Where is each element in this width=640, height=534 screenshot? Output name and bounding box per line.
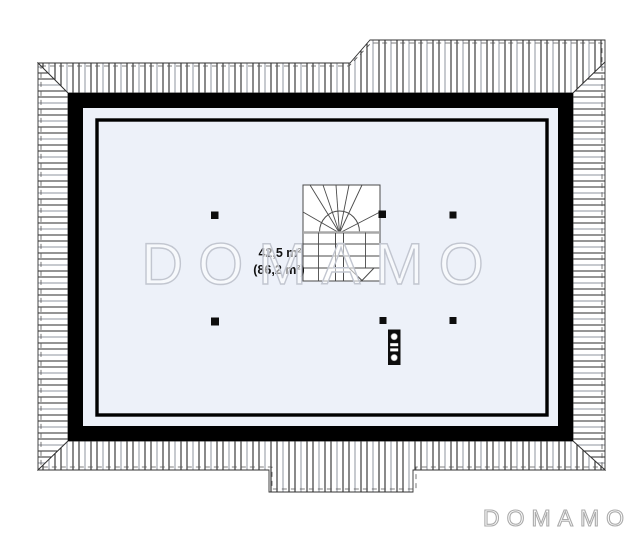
flue-circle-bottom [391,354,397,360]
chimney-block [388,330,401,366]
floor-plan-drawing: 42,5 m² (86,2 m²) DOMAMO DOMAMO [0,0,640,534]
flue-vent-slot [390,348,398,351]
roof-slope-right [573,62,605,470]
post [211,212,219,220]
roof-slope-bottom [38,441,605,492]
flue-vent-slot [390,343,398,346]
post [379,211,387,219]
post [211,318,219,326]
watermark-center: DOMAMO [141,232,498,297]
floor-plan-canvas: 42,5 m² (86,2 m²) DOMAMO DOMAMO [0,0,640,534]
roof-slope-left [38,63,68,470]
roof-slope-top [38,40,605,93]
post [380,317,387,324]
flue-circle-top [391,333,397,339]
post [450,212,457,219]
watermark-corner-logo: DOMAMO [483,505,631,531]
post [450,317,457,324]
